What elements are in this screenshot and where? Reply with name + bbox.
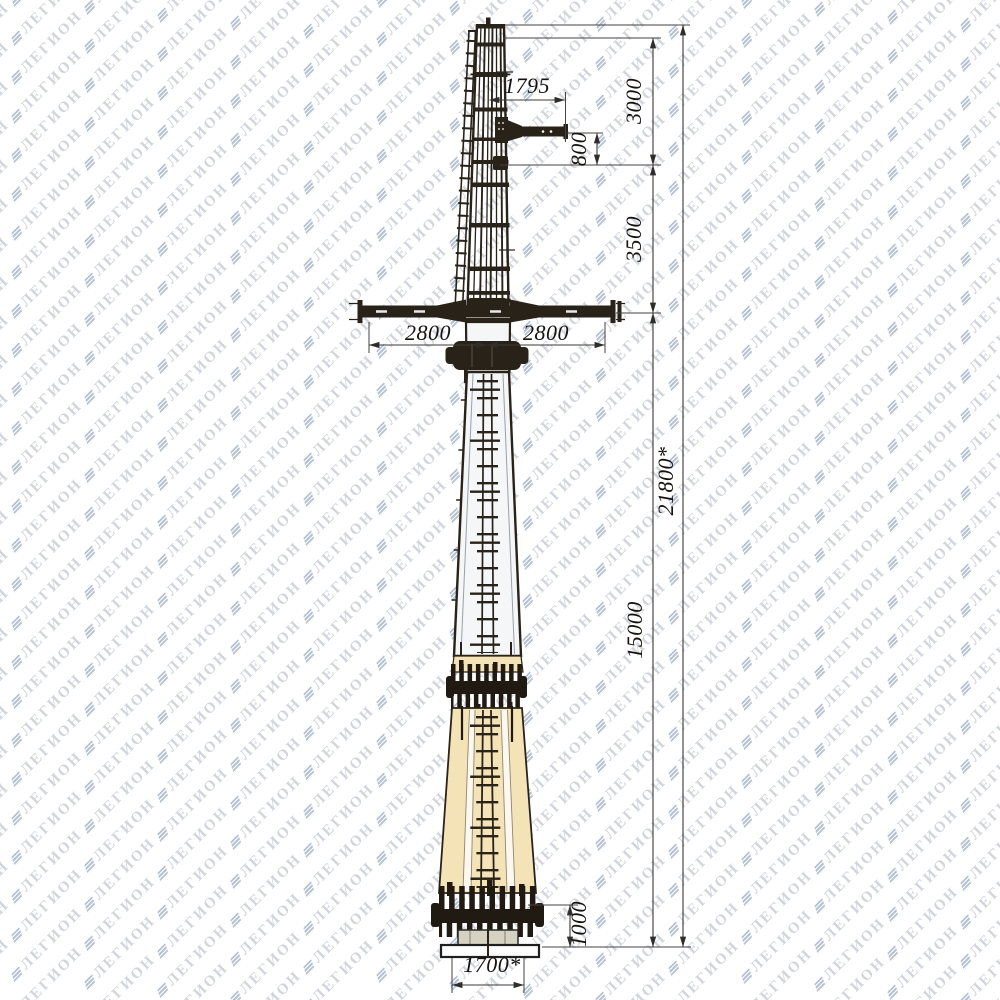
dimension-label-1000: 1000: [566, 901, 591, 947]
dimension-label-800: 800: [566, 132, 591, 167]
dimension-label-15000: 15000: [622, 601, 647, 659]
dimension-label-21800: 21800*: [653, 447, 678, 516]
dimension-label-1700: 1700*: [463, 952, 521, 977]
pole-top-section: [455, 18, 511, 310]
dimension-label-3500: 3500: [621, 216, 646, 263]
dimension-label-1795: 1795: [504, 73, 550, 98]
top-bracket-arm: [495, 117, 568, 143]
dimension-label-3000: 3000: [621, 78, 646, 125]
middle-tube-section: [452, 372, 522, 668]
drawing-canvas: ЛЕГИОНЛЕГИОНЛЕГИОНЛЕГИОНЛЕГИОНЛЕГИОНЛЕГИ…: [0, 0, 1000, 1000]
pole-elevation-drawing: 1795 3000 800 3500 2800 2800 21800* 1500…: [0, 0, 1000, 1000]
dimension-label-2800-left: 2800: [405, 320, 451, 345]
tan-lower-section: [439, 706, 536, 893]
dimension-label-2800-right: 2800: [523, 320, 569, 345]
